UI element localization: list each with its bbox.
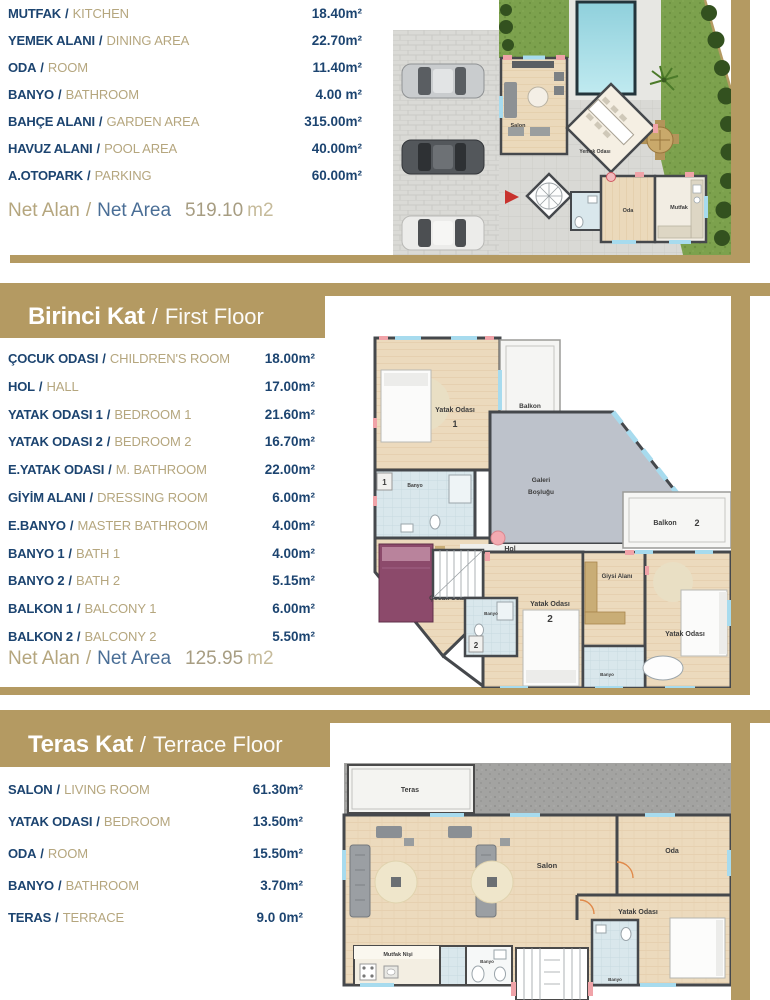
room-label-en: CHILDREN'S ROOM: [110, 351, 230, 366]
room-label-tr: ODA: [8, 846, 36, 861]
table-row: ÇOCUK ODASI/CHILDREN'S ROOM18.00m²: [8, 349, 315, 369]
room-label-en: GARDEN AREA: [107, 114, 200, 129]
separator: /: [152, 304, 158, 330]
plan-label-gallery2: Boşluğu: [528, 489, 554, 496]
separator: /: [87, 168, 91, 183]
net-area-number: 519.10: [185, 200, 243, 221]
marker-dot: [607, 173, 616, 182]
room-label-tr: YATAK ODASI: [8, 814, 92, 829]
separator: /: [107, 434, 111, 449]
brochure-page: MUTFAK/KITCHEN18.40m² YEMEK ALANI/DINING…: [0, 0, 770, 1000]
plan-label-bed1-num: 1: [452, 419, 457, 429]
table-row: TERAS/TERRACE9.0 0m²: [8, 908, 303, 928]
marker-dot: [491, 531, 505, 545]
room-label-tr: ODA: [8, 60, 36, 75]
room-area-value: 17.00m²: [265, 377, 315, 397]
room-label-tr: E.BANYO: [8, 518, 66, 533]
room-area-value: 11.40m²: [312, 58, 362, 78]
room-bath2: Banyo 2: [465, 598, 517, 656]
plan-label-bath1: Banyo: [407, 483, 422, 489]
separator: /: [140, 732, 146, 758]
separator: /: [58, 87, 62, 102]
net-area-unit: m2: [247, 648, 273, 669]
room-label-tr: YATAK ODASI 1: [8, 407, 103, 422]
frame-bottom-bar: [10, 255, 750, 263]
room-label-tr: HOL: [8, 379, 35, 394]
table-row: ODA/ROOM15.50m²: [8, 844, 303, 864]
table-row: YATAK ODASI 2/BEDROOM 216.70m²: [8, 432, 315, 452]
room-area-value: 22.00m²: [265, 460, 315, 480]
room-label-en: HALL: [46, 379, 78, 394]
room-label-en: BATHROOM: [66, 878, 139, 893]
table-row: YATAK ODASI/BEDROOM13.50m²: [8, 812, 303, 832]
plan-label-bed1: Yatak Odası: [435, 407, 475, 414]
plan-label-bath-left: Banyo: [480, 959, 494, 964]
plan-label-bed2-num: 2: [547, 614, 553, 625]
separator: /: [86, 648, 91, 669]
separator: /: [70, 518, 74, 533]
room-area-value: 4.00m²: [272, 516, 315, 536]
ground-floor-site-plan: Salon Yemek Odası Oda Mutfak: [388, 0, 731, 255]
plan-label-salon: Salon: [537, 861, 558, 870]
net-area-number: 125.95: [185, 648, 243, 669]
table-row: E.BANYO/MASTER BATHROOM4.00m²: [8, 516, 315, 536]
room-area-value: 6.00m²: [272, 488, 315, 508]
car: [402, 64, 484, 98]
room-label-tr: BANYO 1: [8, 546, 64, 561]
separator: /: [108, 462, 112, 477]
room-label-en: MASTER BATHROOM: [77, 518, 207, 533]
separator: /: [58, 878, 62, 893]
section-top-bar: [0, 283, 770, 296]
table-row: BANYO 2/BATH 25.15m²: [8, 571, 315, 591]
section-title-first-floor: Birinci Kat/First Floor: [0, 296, 325, 338]
separator: /: [99, 33, 103, 48]
room-label-tr: YEMEK ALANI: [8, 33, 95, 48]
room-label-tr: BANYO: [8, 87, 54, 102]
room-area-value: 315.00m²: [304, 112, 362, 132]
separator: /: [57, 782, 61, 797]
separator: /: [40, 60, 44, 75]
net-area-line: Net Alan/Net Area519.10m2: [8, 200, 274, 222]
net-label-en: Net Area: [97, 648, 171, 669]
room-bedroom1: Yatak Odası 1: [373, 336, 500, 470]
room-label-en: BEDROOM 2: [114, 434, 191, 449]
plan-label-dressing: Giysi Alanı: [602, 574, 633, 580]
parking-area: [393, 30, 499, 255]
terrace-area: Teras: [348, 765, 474, 813]
room-label-en: M. BATHROOM: [116, 462, 207, 477]
plan-label-kitchen: Mutfak Nişi: [383, 952, 413, 958]
plan-label-bath2: Banyo: [484, 611, 498, 616]
room-area-value: 9.0 0m²: [256, 908, 303, 928]
separator: /: [55, 910, 59, 925]
separator: /: [102, 351, 106, 366]
table-row: E.YATAK ODASI/M. BATHROOM22.00m²: [8, 460, 315, 480]
plan-label-oda: Oda: [623, 208, 635, 214]
plan-label-bed: Yatak Odası: [618, 909, 658, 916]
room-label-en: POOL AREA: [104, 141, 177, 156]
table-row: HOL/HALL17.00m²: [8, 377, 315, 397]
separator: /: [77, 629, 81, 644]
table-row: BANYO 1/BATH 14.00m²: [8, 544, 315, 564]
car: [402, 140, 484, 174]
net-area-line: Net Alan/Net Area125.95m2: [8, 648, 274, 670]
room-label-tr: A.OTOPARK: [8, 168, 83, 183]
room-label-en: BEDROOM 1: [114, 407, 191, 422]
terrace-floor-plan: Teras Salon Oda Yatak Odası Banyo: [340, 750, 731, 1000]
room-label-tr: E.YATAK ODASI: [8, 462, 104, 477]
plan-label-bed2: Yatak Odası: [530, 601, 570, 608]
room-area-value: 18.40m²: [312, 4, 362, 24]
room-label-en: BALCONY 2: [84, 629, 156, 644]
table-row: BALKON 1/BALCONY 16.00m²: [8, 599, 315, 619]
table-row: ODA/ROOM11.40m²: [8, 58, 362, 78]
swimming-pool: [577, 2, 635, 94]
separator: /: [99, 114, 103, 129]
room-label-en: DRESSING ROOM: [97, 490, 208, 505]
separator: /: [65, 6, 69, 21]
room-label-en: ROOM: [48, 60, 88, 75]
plan-label-bath-center: Banyo: [608, 977, 622, 982]
room-area-value: 5.50m²: [272, 627, 315, 647]
separator: /: [68, 573, 72, 588]
table-row: A.OTOPARK/PARKING60.00m²: [8, 166, 362, 186]
room-area-value: 6.00m²: [272, 599, 315, 619]
room-label-en: BEDROOM: [104, 814, 170, 829]
kitchen-niche: Mutfak Nişi: [354, 946, 440, 985]
room-label-tr: HAVUZ ALANI: [8, 141, 92, 156]
room-area-value: 4.00 m²: [315, 85, 362, 105]
plan-badge-1: 1: [382, 478, 387, 487]
separator: /: [107, 407, 111, 422]
table-row: SALON/LIVING ROOM61.30m²: [8, 780, 303, 800]
room-label-tr: SALON: [8, 782, 53, 797]
plan-label-oda: Oda: [665, 848, 679, 855]
room-label-en: ROOM: [48, 846, 88, 861]
room-area-value: 5.15m²: [272, 571, 315, 591]
plan-label-kitchen: Mutfak: [670, 205, 689, 211]
net-area-unit: m2: [247, 200, 273, 221]
room-dressing: Giysi Alanı: [583, 552, 645, 646]
separator: /: [89, 490, 93, 505]
staircase: [511, 948, 593, 1000]
room-bath-left: Banyo: [440, 946, 512, 985]
room-area-value: 60.00m²: [312, 166, 362, 186]
title-tr: Birinci Kat: [28, 303, 145, 331]
room-area-value: 40.00m²: [312, 139, 362, 159]
frame-right-strip: [731, 296, 750, 695]
separator: /: [77, 601, 81, 616]
room-label-en: KITCHEN: [73, 6, 129, 21]
room-label-tr: BANYO 2: [8, 573, 64, 588]
net-label-tr: Net Alan: [8, 200, 80, 221]
room-area-value: 61.30m²: [253, 780, 303, 800]
room-area-value: 22.70m²: [312, 31, 362, 51]
frame-right-strip: [731, 0, 750, 263]
section-title-terrace-floor: Teras Kat/Terrace Floor: [0, 723, 330, 767]
room-area-value: 16.70m²: [265, 432, 315, 452]
room-balcony2: Balkon 2: [623, 492, 731, 548]
room-label-tr: ÇOCUK ODASI: [8, 351, 98, 366]
table-row: YATAK ODASI 1/BEDROOM 121.60m²: [8, 405, 315, 425]
room-label-en: DINING AREA: [107, 33, 190, 48]
table-row: HAVUZ ALANI/POOL AREA40.00m²: [8, 139, 362, 159]
plan-label-master: Yatak Odası: [665, 631, 705, 638]
room-area-value: 21.60m²: [265, 405, 315, 425]
room-bath-center: Banyo: [592, 920, 638, 985]
table-row: BAHÇE ALANI/GARDEN AREA315.00m²: [8, 112, 362, 132]
separator: /: [68, 546, 72, 561]
table-row: BALKON 2/BALCONY 25.50m²: [8, 627, 315, 647]
room-label-en: TERRACE: [63, 910, 124, 925]
title-tr: Teras Kat: [28, 731, 133, 759]
separator: /: [96, 141, 100, 156]
room-label-tr: BAHÇE ALANI: [8, 114, 95, 129]
room-area-value: 3.70m²: [260, 876, 303, 896]
room-label-tr: GİYİM ALANI: [8, 490, 85, 505]
separator: /: [40, 846, 44, 861]
staircase: [433, 550, 483, 598]
plan-label-gallery1: Galeri: [532, 477, 551, 484]
room-bath1: 1 Banyo: [375, 470, 475, 538]
table-row: MUTFAK/KITCHEN18.40m²: [8, 4, 362, 24]
plan-label-dining: Yemek Odası: [579, 149, 611, 155]
room-area-value: 15.50m²: [253, 844, 303, 864]
bathtub: [643, 656, 683, 680]
room-area-value: 4.00m²: [272, 544, 315, 564]
room-label-tr: YATAK ODASI 2: [8, 434, 103, 449]
table-row: YEMEK ALANI/DINING AREA22.70m²: [8, 31, 362, 51]
separator: /: [39, 379, 43, 394]
room-label-en: BATHROOM: [66, 87, 139, 102]
room-label-en: BATH 2: [76, 573, 120, 588]
frame-right-strip: [731, 723, 750, 1000]
frame-bottom-bar: [0, 687, 750, 695]
room-label-tr: BALKON 1: [8, 601, 73, 616]
plan-badge-2: 2: [474, 641, 479, 650]
room-label-en: BATH 1: [76, 546, 120, 561]
room-label-en: PARKING: [95, 168, 152, 183]
room-label-tr: MUTFAK: [8, 6, 61, 21]
table-row: GİYİM ALANI/DRESSING ROOM6.00m²: [8, 488, 315, 508]
separator: /: [86, 200, 91, 221]
net-label-en: Net Area: [97, 200, 171, 221]
room-area-value: 18.00m²: [265, 349, 315, 369]
title-en: First Floor: [165, 304, 264, 330]
plan-label-teras: Teras: [401, 787, 419, 794]
net-label-tr: Net Alan: [8, 648, 80, 669]
separator: /: [96, 814, 100, 829]
plan-label-salon: Salon: [511, 123, 527, 129]
section-top-bar: [0, 710, 770, 723]
plan-label-bath3: Banyo: [600, 672, 614, 677]
room-label-tr: BALKON 2: [8, 629, 73, 644]
table-row: BANYO/BATHROOM3.70m²: [8, 876, 303, 896]
table-row: BANYO/BATHROOM4.00 m²: [8, 85, 362, 105]
room-label-en: BALCONY 1: [84, 601, 156, 616]
plan-label-balcony2-num: 2: [694, 518, 699, 528]
car: [402, 216, 484, 250]
room-area-value: 13.50m²: [253, 812, 303, 832]
room-label-en: LIVING ROOM: [64, 782, 150, 797]
first-floor-plan: Yatak Odası 1 Balkon 1 1 Banyo Çocuk Oda…: [365, 300, 731, 688]
plan-label-balcony1: Balkon: [519, 403, 541, 410]
room-label-tr: BANYO: [8, 878, 54, 893]
plan-label-balcony2: Balkon: [653, 520, 676, 527]
title-en: Terrace Floor: [153, 732, 283, 758]
room-label-tr: TERAS: [8, 910, 51, 925]
